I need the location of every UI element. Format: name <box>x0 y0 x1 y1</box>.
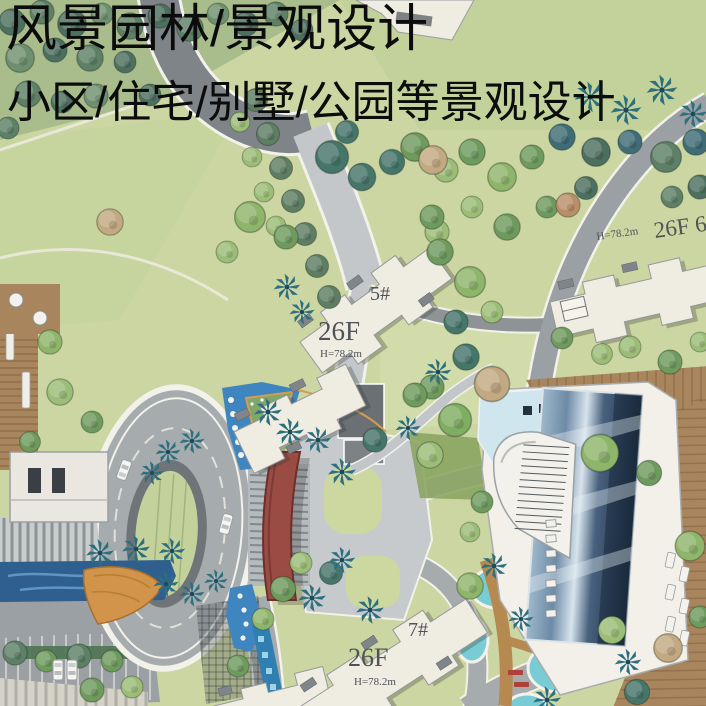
label-b5-height: H=78.2m <box>320 348 362 360</box>
label-b5-floors: 26F <box>318 316 360 346</box>
label-b7-height: H=78.2m <box>354 676 396 688</box>
label-b7-unit: 7# <box>408 619 428 641</box>
poster-title-line1: 风景园林/景观设计 <box>6 2 428 56</box>
landscape-plan-poster: 5# 26F H=78.2m H=78.2m 26F 6# 7# 26F H=7… <box>0 0 706 706</box>
west-pavilion <box>10 452 108 522</box>
label-b5-unit: 5# <box>370 283 390 305</box>
poster-title-line2: 小区/住宅/别墅/公园等景观设计 <box>7 80 616 126</box>
label-b7-floors: 26F <box>348 643 388 672</box>
